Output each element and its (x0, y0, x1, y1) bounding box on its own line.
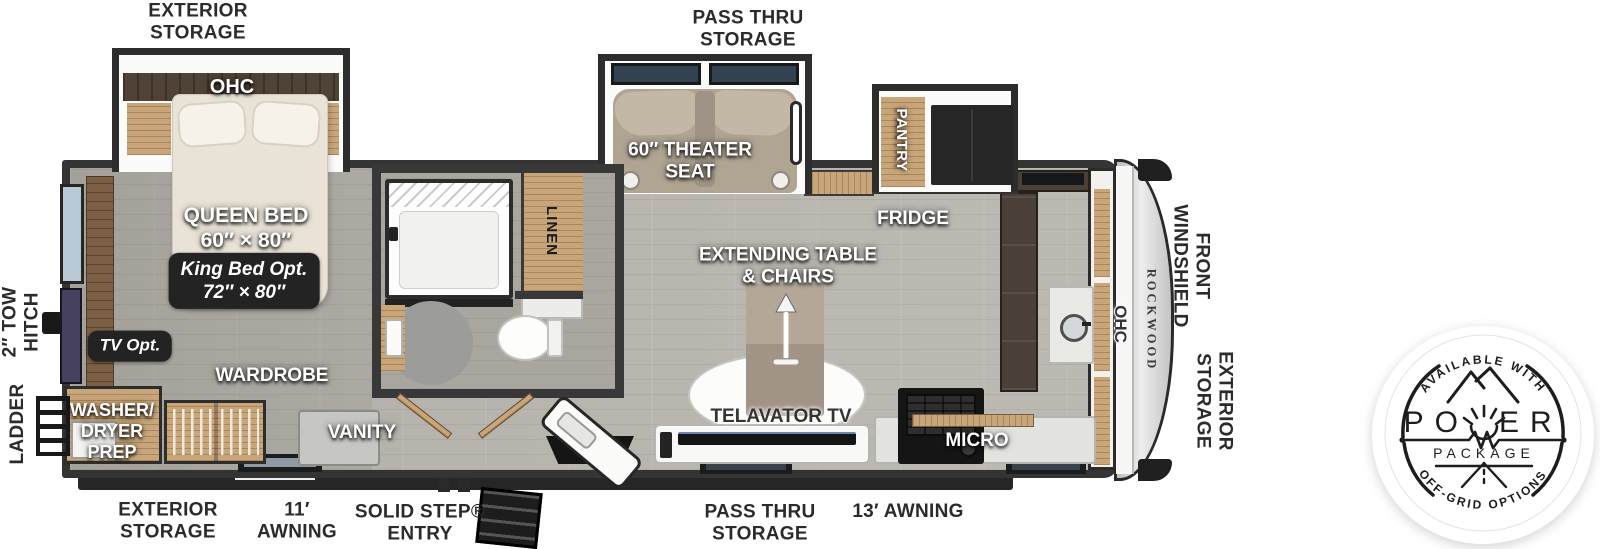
hangers (221, 409, 259, 455)
power-package-badge: AVAILABLE WITH PO ER PACKAGE (1372, 326, 1594, 544)
front-ohc-label: OHC (1110, 305, 1130, 343)
shower-tray (399, 211, 499, 289)
washer-dryer-label: WASHER/ DRYER PREP (70, 400, 154, 464)
wardrobe-divider (214, 403, 218, 461)
bath-divider (515, 291, 583, 299)
shower (385, 179, 513, 299)
label-front-exterior-storage: EXTERIOR STORAGE (1191, 351, 1236, 451)
slide-window (709, 63, 799, 85)
label-tow-hitch: 2″ TOW HITCH (0, 287, 44, 358)
wardrobe-label: WARDROBE (216, 365, 329, 387)
badge-power-right: ER (1499, 406, 1563, 439)
fridge-label: FRIDGE (877, 208, 949, 230)
kitchen-window (1022, 173, 1084, 185)
faucet (1082, 322, 1091, 326)
fridge-door-split (971, 109, 973, 181)
bathroom (372, 164, 624, 398)
slide-window (611, 63, 701, 85)
entry-steps (475, 487, 543, 549)
queen-bed-label: QUEEN BED 60″ × 80″ (184, 204, 309, 254)
ohc-panel (1094, 189, 1110, 277)
pantry-label: PANTRY (892, 109, 910, 172)
nightstand (127, 103, 171, 155)
seat-back (614, 90, 701, 137)
label-pass-thru-bottom: PASS THRU STORAGE (704, 502, 815, 547)
floorplan-canvas: ROCKWOOD OHC PANTRY FRIDGE (0, 0, 1600, 549)
cabinet-end (660, 432, 672, 458)
tv-option-chip: TV Opt. (88, 331, 172, 362)
micro-label: MICRO (945, 430, 1008, 452)
rear-window (60, 184, 84, 284)
shower-glass (389, 183, 509, 207)
seat-back (708, 90, 795, 137)
label-pass-thru-top: PASS THRU STORAGE (692, 8, 803, 53)
label-exterior-storage-bottom: EXTERIOR STORAGE (118, 500, 218, 545)
kitchen-side-cabinet (1000, 192, 1038, 392)
cup-holder (771, 171, 790, 190)
king-bed-option-chip: King Bed Opt. 72″ × 80″ (169, 253, 320, 309)
toilet-tank (547, 319, 563, 357)
ohc-panel (1094, 283, 1110, 371)
pillow (251, 100, 322, 149)
telavator-label: TELAVATOR TV (710, 406, 851, 428)
slide-end-window (790, 101, 802, 165)
extend-arrow-icon (770, 290, 802, 368)
theater-seat-label: 60″ THEATER SEAT (628, 140, 752, 185)
extending-table-label: EXTENDING TABLE & CHAIRS (699, 245, 877, 290)
fridge-appliance (931, 105, 1013, 185)
sink (1060, 314, 1088, 342)
ohc-panel (1094, 377, 1110, 465)
cutting-board (912, 414, 1034, 427)
entry-tab (458, 478, 470, 492)
wardrobe (164, 400, 266, 464)
pillow (177, 100, 248, 149)
bedroom-ohc-label: OHC (210, 76, 254, 100)
toilet-bowl (497, 315, 553, 361)
shower-head (389, 227, 398, 241)
cap-corner (1138, 459, 1172, 481)
label-awning-11: 11′ AWNING (257, 500, 337, 545)
badge-power-left: PO (1404, 406, 1469, 439)
bath-sink (385, 319, 403, 357)
bedroom-tv (60, 288, 82, 384)
badge-package-text: PACKAGE (1433, 445, 1535, 461)
cap-corner (1138, 159, 1172, 181)
counter-top-wall (804, 170, 874, 196)
label-solid-step-entry: SOLID STEP® ENTRY (355, 502, 485, 547)
ladder-icon (36, 396, 70, 456)
sink-counter (1048, 286, 1094, 364)
linen-label: LINEN (542, 206, 560, 256)
label-ladder: LADDER (7, 384, 29, 465)
hitch-icon (42, 312, 62, 334)
hangers (173, 409, 215, 455)
label-awning-13: 13′ AWNING (852, 501, 963, 523)
label-exterior-storage-top: EXTERIOR STORAGE (148, 1, 248, 46)
entry-tab (438, 478, 450, 492)
vanity-label: VANITY (328, 422, 396, 444)
label-front-windshield: FRONT WINDSHIELD (1168, 204, 1213, 327)
telavator-cabinet (654, 424, 870, 464)
tv-bar (678, 432, 856, 445)
brand-label: ROCKWOOD (1144, 269, 1159, 371)
